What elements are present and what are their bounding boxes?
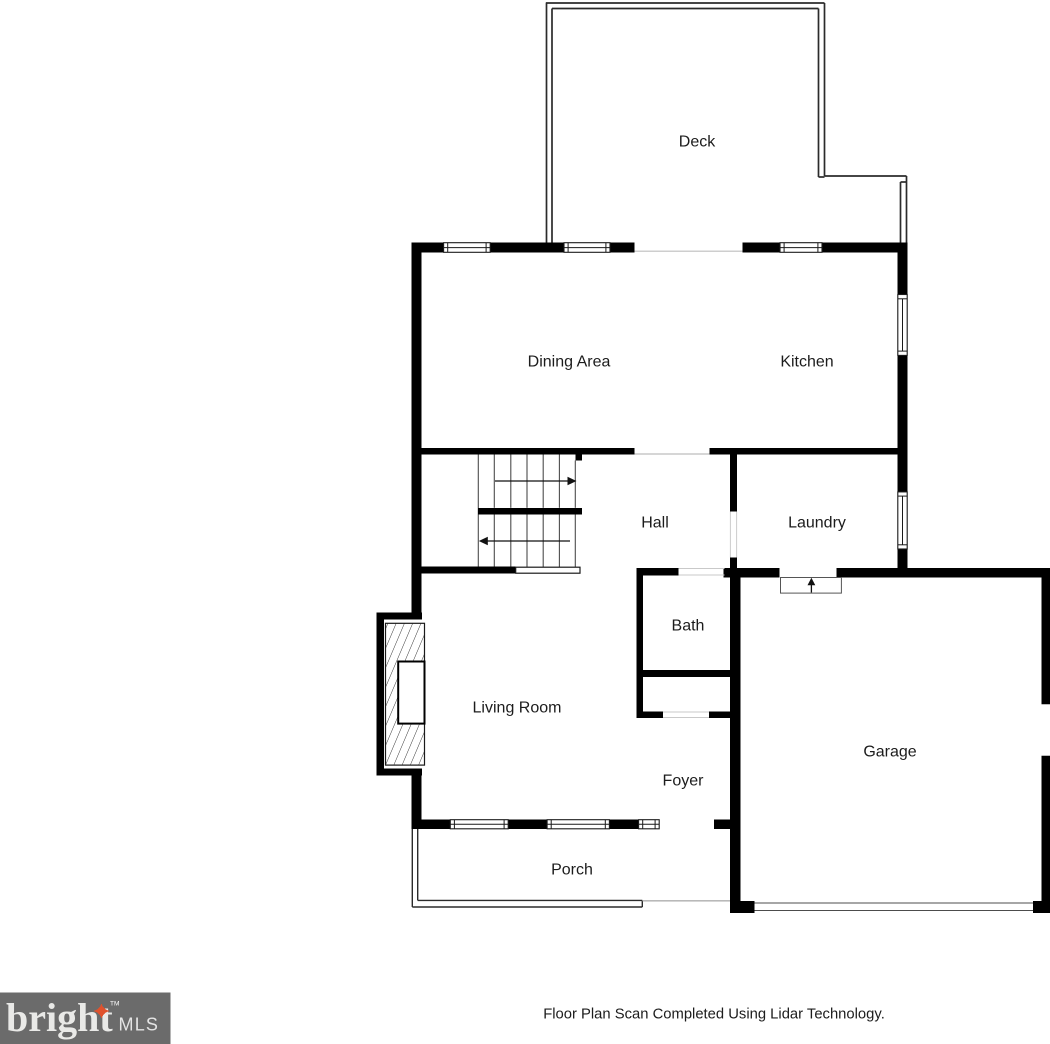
svg-text:TM: TM [110,1001,119,1008]
svg-text:Kitchen: Kitchen [780,354,833,371]
svg-text:Hall: Hall [641,515,669,532]
svg-text:Deck: Deck [679,134,716,151]
svg-text:Garage: Garage [863,744,916,761]
svg-text:Dining Area: Dining Area [528,354,611,371]
svg-text:Foyer: Foyer [663,773,705,790]
svg-text:Porch: Porch [551,862,593,879]
svg-text:Living Room: Living Room [473,700,562,717]
svg-text:Bath: Bath [672,618,705,635]
svg-text:bright: bright [6,995,113,1040]
svg-text:MLS: MLS [119,1015,160,1035]
svg-text:Floor Plan Scan Completed Usin: Floor Plan Scan Completed Using Lidar Te… [543,1007,885,1023]
svg-text:Laundry: Laundry [788,515,846,532]
